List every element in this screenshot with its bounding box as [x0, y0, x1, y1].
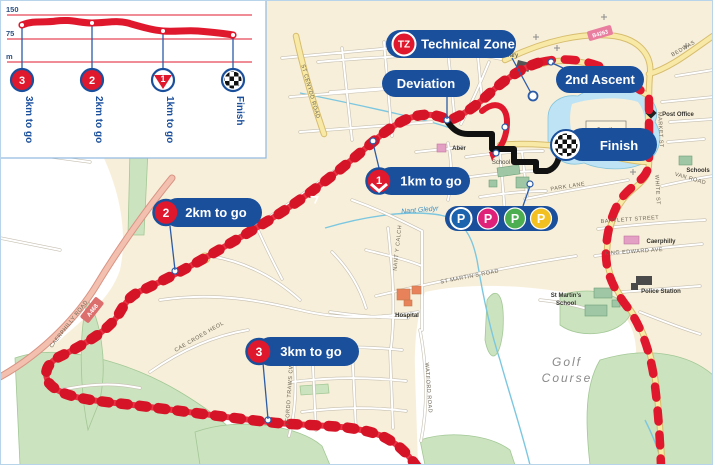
km1-num: 1: [376, 175, 382, 187]
km3-callout: 3 3km to go: [247, 337, 360, 366]
technical-zone-label: Technical Zone: [421, 37, 515, 52]
st-martins-school-label-1: St Martin's: [551, 293, 582, 299]
km3-label: 3km to go: [280, 344, 341, 359]
profile-marker-1km-num: 1: [160, 74, 165, 84]
finish-callout: Finish: [551, 128, 657, 161]
profile-marker-finish: [222, 69, 244, 91]
station-label: Caerphilly: [646, 239, 676, 245]
parking-p1: P: [457, 212, 465, 226]
aber-label: Aber: [452, 146, 466, 152]
parking-block: P P P P: [445, 206, 558, 231]
technical-zone-callout: TZ Technical Zone: [386, 30, 516, 58]
police-station-label: Police Station: [641, 289, 681, 295]
profile-marker-2km-num: 2: [89, 75, 95, 87]
second-ascent-callout: 2nd Ascent: [556, 66, 644, 93]
schools-label: Schools: [686, 168, 710, 174]
profile-label-finish: Finish: [234, 96, 245, 125]
parking-p3: P: [511, 212, 519, 226]
schools-building: [679, 156, 692, 165]
parking-p2: P: [484, 212, 492, 226]
technical-zone-point: [529, 92, 538, 101]
st-martins-school-label-2: School: [556, 301, 576, 307]
golf-course-label-2: Course: [542, 371, 593, 385]
finish-label: Finish: [600, 138, 638, 153]
km1-label: 1km to go: [400, 174, 461, 189]
golf-course-label-1: Golf: [552, 355, 582, 369]
route-map: Castle library School Aber Hospital Post…: [0, 0, 713, 465]
km2-label: 2km to go: [185, 205, 246, 220]
deviation-callout: Deviation: [382, 70, 470, 97]
profile-ytick-75: 75: [6, 29, 14, 38]
finish-flag-checkers: [555, 134, 578, 157]
km2-callout: 2 2km to go: [154, 198, 263, 227]
profile-ytick-m: m: [6, 52, 13, 61]
profile-ytick-150: 150: [6, 5, 19, 14]
km3-num: 3: [256, 345, 263, 359]
parking-p4: P: [537, 212, 545, 226]
profile-label-3km: 3km to go: [23, 96, 34, 143]
profile-label-1km: 1km to go: [164, 96, 175, 143]
aber-station-building: [437, 144, 446, 152]
deviation-label: Deviation: [397, 76, 456, 91]
tz-icon-text: TZ: [398, 40, 410, 51]
station-building: [624, 236, 639, 244]
school-label: School: [492, 160, 510, 166]
elevation-profile: 150 75 m 3 2 1 3km to go 2km to go: [0, 0, 266, 158]
finish-checker-icon: [225, 72, 242, 89]
profile-point-finish: [230, 32, 236, 38]
km1-callout: 1 1km to go: [367, 167, 471, 195]
profile-point-2km: [89, 20, 95, 26]
profile-marker-1km: 1: [152, 69, 174, 91]
profile-point-3km: [19, 22, 25, 28]
profile-label-2km: 2km to go: [93, 96, 104, 143]
profile-point-1km: [160, 28, 166, 34]
second-ascent-label: 2nd Ascent: [565, 72, 635, 87]
km2-num: 2: [163, 206, 170, 220]
profile-marker-3km-num: 3: [19, 75, 25, 87]
post-office-label: Post Office: [662, 112, 694, 118]
hospital-label: Hospital: [395, 313, 419, 319]
route-map-page: Castle library School Aber Hospital Post…: [0, 0, 713, 465]
